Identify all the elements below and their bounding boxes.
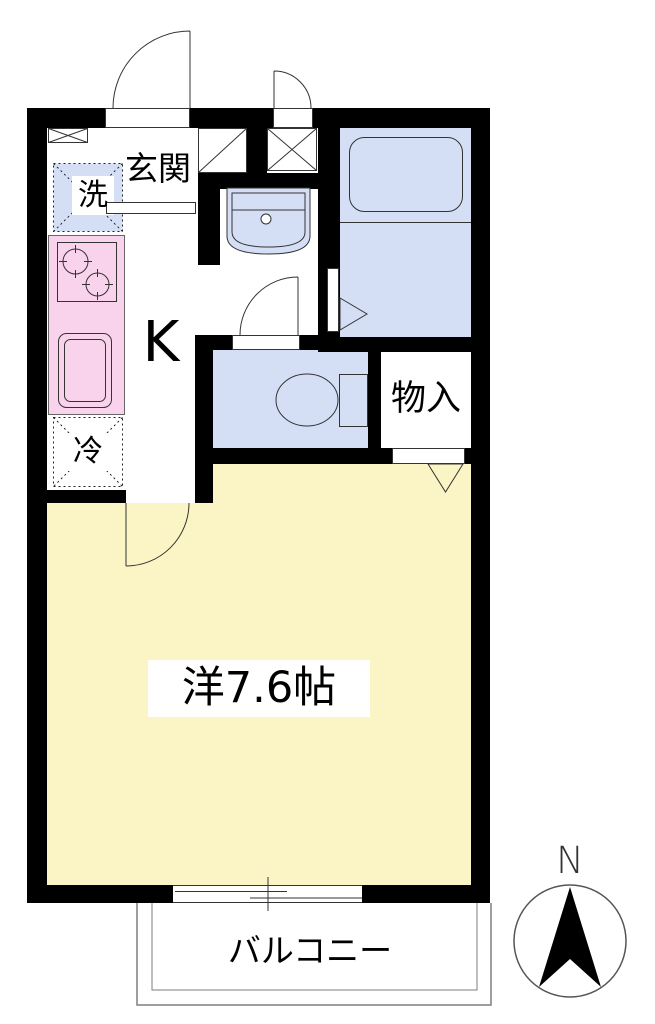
wall-toilet-storage-divider bbox=[368, 350, 381, 464]
stove-burner-1 bbox=[59, 245, 92, 278]
label-entrance: 玄関 bbox=[122, 149, 194, 187]
bathroom-floor bbox=[340, 128, 471, 337]
kitchen-sink bbox=[59, 334, 112, 408]
stove bbox=[58, 243, 117, 302]
label-fridge: 冷 bbox=[68, 433, 108, 471]
wall-right bbox=[471, 108, 490, 903]
ps-box-top-left bbox=[49, 129, 88, 143]
shoe-cabinet-box bbox=[199, 129, 247, 173]
label-kitchen: K bbox=[134, 312, 188, 374]
main-room-floor-upper bbox=[213, 464, 471, 503]
label-compass-north: N bbox=[551, 841, 589, 879]
toilet-door-arc bbox=[240, 277, 298, 335]
stove-burner-2 bbox=[82, 269, 113, 300]
compass bbox=[514, 885, 626, 997]
wall-bottom-left bbox=[27, 885, 173, 903]
ps-box-top bbox=[268, 129, 317, 171]
entrance-step bbox=[107, 203, 196, 214]
floorplan-canvas: 玄関 洗 K 冷 物入 洋7.6帖 バルコニー N bbox=[0, 0, 655, 1024]
label-main-room: 洋7.6帖 bbox=[148, 660, 370, 717]
toilet-room-floor bbox=[213, 350, 368, 448]
compass-circle bbox=[514, 885, 626, 997]
wall-washroom-left bbox=[198, 173, 220, 265]
wall-toilet-left bbox=[195, 335, 213, 503]
wall-left bbox=[27, 108, 47, 903]
wall-toilet-bottom bbox=[195, 448, 471, 464]
label-storage: 物入 bbox=[383, 374, 469, 424]
wall-kitchen-main bbox=[27, 490, 126, 503]
label-balcony: バルコニー bbox=[190, 929, 430, 971]
wall-top bbox=[27, 108, 490, 128]
kitchen-counter bbox=[49, 236, 125, 415]
wash-basin bbox=[227, 188, 310, 254]
entrance-door-arc bbox=[113, 31, 190, 108]
wall-bath-bottom bbox=[318, 337, 471, 352]
wall-shoebox-divider bbox=[247, 128, 267, 177]
label-washer: 洗 bbox=[72, 176, 114, 215]
compass-north-arrow bbox=[539, 887, 601, 987]
wall-bottom-right bbox=[362, 885, 490, 903]
ps-door-arc bbox=[274, 71, 311, 108]
wall-bath-divider bbox=[318, 128, 340, 350]
